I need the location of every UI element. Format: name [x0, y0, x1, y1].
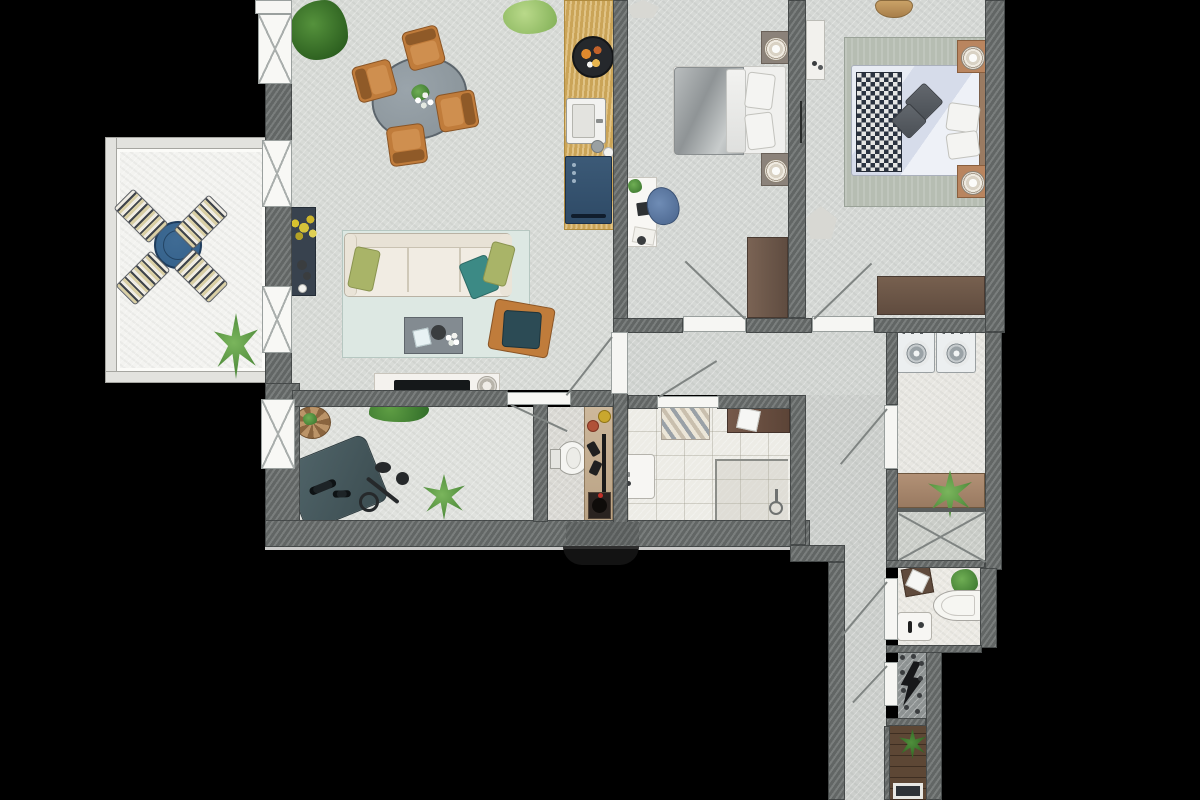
screw-dot — [911, 654, 916, 659]
window-frame — [255, 0, 292, 14]
screw-dot — [904, 705, 909, 710]
wall — [886, 645, 982, 653]
door-sill — [657, 396, 719, 408]
wall — [628, 395, 658, 409]
faucet — [908, 621, 912, 633]
plant-top — [503, 0, 557, 34]
wall — [613, 392, 628, 525]
nightstand — [957, 40, 987, 73]
entry-hall-floor — [890, 726, 926, 800]
pillow — [945, 102, 981, 134]
wall — [886, 332, 898, 405]
faucet-dot — [598, 493, 603, 498]
wall — [886, 469, 898, 562]
lightning-bolt-icon — [898, 660, 925, 708]
door-sill — [507, 392, 571, 405]
wall — [985, 0, 1005, 332]
towel — [905, 569, 930, 593]
wall-divider — [898, 508, 985, 512]
stove — [565, 156, 612, 224]
wall — [980, 568, 997, 648]
decor-plate — [572, 36, 614, 78]
toilet — [933, 590, 982, 621]
bath-rug — [661, 405, 710, 440]
pillow — [744, 71, 776, 110]
washing-machine — [896, 326, 935, 373]
door-sill — [884, 662, 898, 706]
wall — [292, 390, 508, 407]
dining-chair — [434, 89, 480, 133]
electrical-floor — [898, 653, 926, 718]
vanity — [584, 405, 613, 523]
wall — [790, 395, 806, 545]
wall — [886, 718, 926, 726]
screw-dot — [915, 709, 920, 714]
screw-dot — [901, 688, 906, 693]
bowl — [298, 284, 307, 293]
wall — [613, 0, 628, 334]
door-sill — [683, 316, 746, 332]
wall — [926, 645, 942, 800]
pillow — [347, 246, 381, 292]
wall — [265, 520, 810, 547]
entrance-door — [566, 522, 639, 545]
kitchen-sink — [566, 98, 606, 144]
screw-dot — [900, 655, 905, 660]
blanket-fold — [726, 69, 746, 153]
nightstand — [761, 31, 789, 64]
dumbbell — [333, 490, 351, 498]
wall — [570, 390, 614, 407]
coffee-table — [404, 317, 463, 354]
bed — [851, 65, 985, 176]
corridor-floor-upper — [806, 395, 886, 547]
potted-plant — [899, 729, 926, 759]
wall — [828, 562, 845, 800]
exercise-bike — [359, 462, 413, 516]
nightstand — [761, 153, 789, 186]
bike-wheel — [359, 492, 379, 512]
vessel-sink — [588, 492, 611, 519]
bench — [877, 276, 985, 315]
shower-area — [715, 459, 788, 523]
flowers — [443, 331, 462, 348]
book — [412, 328, 431, 348]
drain — [918, 622, 924, 628]
bowl — [297, 260, 307, 270]
bike-flywheel — [396, 472, 409, 485]
door-sill — [812, 316, 874, 332]
floor-plan-canvas — [0, 0, 1200, 800]
entrance-mat — [563, 546, 639, 565]
wall-shelf — [806, 20, 825, 80]
screw-dot — [917, 693, 922, 698]
candle — [598, 410, 611, 423]
towel — [736, 407, 761, 432]
balcony-wall-left — [105, 137, 117, 383]
door-sill — [611, 332, 628, 394]
bowl — [303, 272, 311, 280]
washing-machine — [936, 326, 976, 373]
shower-hose — [775, 489, 778, 502]
dining-chair — [385, 123, 428, 168]
pillow — [482, 241, 516, 288]
pillow — [744, 111, 776, 150]
armchair — [487, 298, 556, 359]
desk-plant — [628, 179, 642, 193]
screw-dot — [919, 661, 924, 666]
wall — [790, 545, 845, 562]
bed — [673, 66, 786, 154]
window — [261, 399, 295, 469]
sink-bowl — [592, 498, 607, 513]
shower-head — [769, 501, 783, 515]
wall — [717, 395, 790, 409]
door-sill — [884, 405, 898, 469]
sofa — [344, 233, 511, 297]
balcony-wall-bottom — [105, 371, 267, 383]
window — [262, 286, 292, 353]
brush — [588, 460, 602, 476]
laundry-box — [901, 565, 934, 598]
window — [262, 140, 292, 207]
mirror — [602, 434, 606, 492]
screw-dot — [900, 670, 905, 675]
screw-dot — [918, 676, 923, 681]
bike-seat — [375, 462, 391, 473]
bath-cabinet — [727, 405, 790, 433]
brush — [586, 441, 601, 458]
hallway-floor — [628, 332, 886, 395]
sink — [897, 612, 932, 641]
balcony-wall-top — [105, 137, 267, 149]
wall — [886, 560, 985, 568]
wall — [985, 332, 1002, 570]
window — [258, 14, 292, 84]
picture-frame — [893, 783, 923, 799]
wall — [788, 0, 806, 318]
pillow — [945, 130, 980, 160]
cup — [587, 420, 599, 432]
door-sill — [884, 578, 898, 640]
wall-rail — [800, 101, 802, 143]
wall — [746, 318, 812, 333]
basket-plant — [303, 413, 317, 425]
plant-fern — [290, 0, 348, 60]
armchair-cushion — [502, 310, 542, 350]
desk-bag — [637, 236, 646, 245]
nightstand — [957, 165, 987, 198]
wardrobe — [747, 237, 788, 318]
wall — [884, 726, 890, 800]
sofa-seam — [407, 248, 409, 292]
wall — [613, 318, 683, 333]
